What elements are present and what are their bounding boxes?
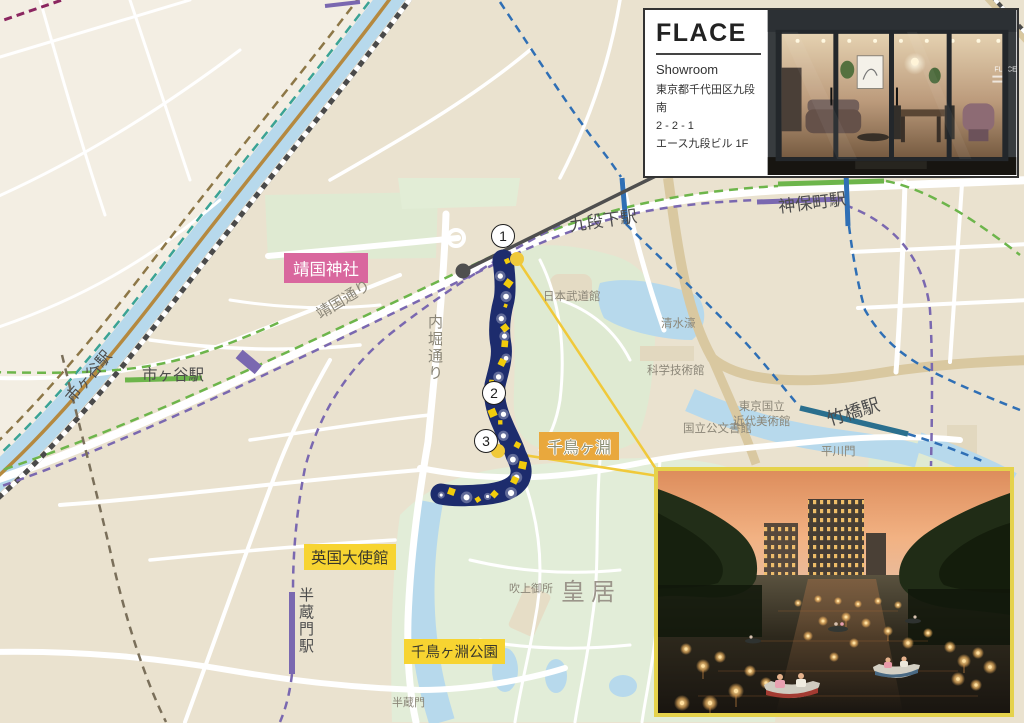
- showroom-info-card: FLACE Showroom 東京都千代田区九段南 2 - 2 - 1 エース九…: [643, 8, 1019, 178]
- hirakawamon-label: 平川門: [821, 443, 856, 459]
- connector-dot-icon: [510, 252, 524, 266]
- imperial-palace-label: 皇居: [561, 572, 621, 607]
- showroom-storefront-illustration: FLACE: [767, 10, 1017, 175]
- showroom-label: Showroom: [656, 62, 761, 77]
- chidorigafuchi-park-label: 千鳥ヶ淵公園: [404, 639, 505, 664]
- ichigaya-station-label: 市ヶ谷駅: [142, 363, 204, 385]
- nippon-budokan-label: 日本武道館: [543, 288, 601, 304]
- address-line2: 2 - 2 - 1: [656, 117, 761, 135]
- lantern-photo-illustration: [658, 471, 1010, 713]
- address-line1: 東京都千代田区九段南: [656, 81, 761, 117]
- national-archives-label: 国立公文書館: [683, 420, 752, 436]
- address-line3: エース九段ビル 1F: [656, 135, 761, 153]
- hanzomon-gate-label: 半蔵門: [392, 694, 425, 710]
- hanzomon-station-label: 半蔵門駅: [295, 587, 316, 655]
- science-museum-label: 科学技術館: [647, 362, 705, 378]
- british-embassy-label: 英国大使館: [304, 544, 396, 570]
- fukiage-gosho-label: 吹上御所: [509, 580, 553, 596]
- showroom-card-text: FLACE Showroom 東京都千代田区九段南 2 - 2 - 1 エース九…: [645, 10, 767, 176]
- route-marker-3: 3: [474, 429, 498, 453]
- route-start-dot-icon: [456, 264, 471, 279]
- route-marker-2: 2: [482, 381, 506, 405]
- uchibori-dori-road-label: 内堀通り: [424, 314, 445, 382]
- momat-label-line1: 東京国立: [733, 400, 791, 415]
- chidorigafuchi-lantern-photo: [654, 467, 1014, 717]
- shimizubori-label: 清水濠: [661, 315, 696, 331]
- showroom-photo: FLACE: [767, 10, 1017, 176]
- chidorigafuchi-label: 千鳥ヶ淵: [539, 432, 619, 460]
- brand-logo: FLACE: [656, 19, 761, 55]
- route-marker-1: 1: [491, 224, 515, 248]
